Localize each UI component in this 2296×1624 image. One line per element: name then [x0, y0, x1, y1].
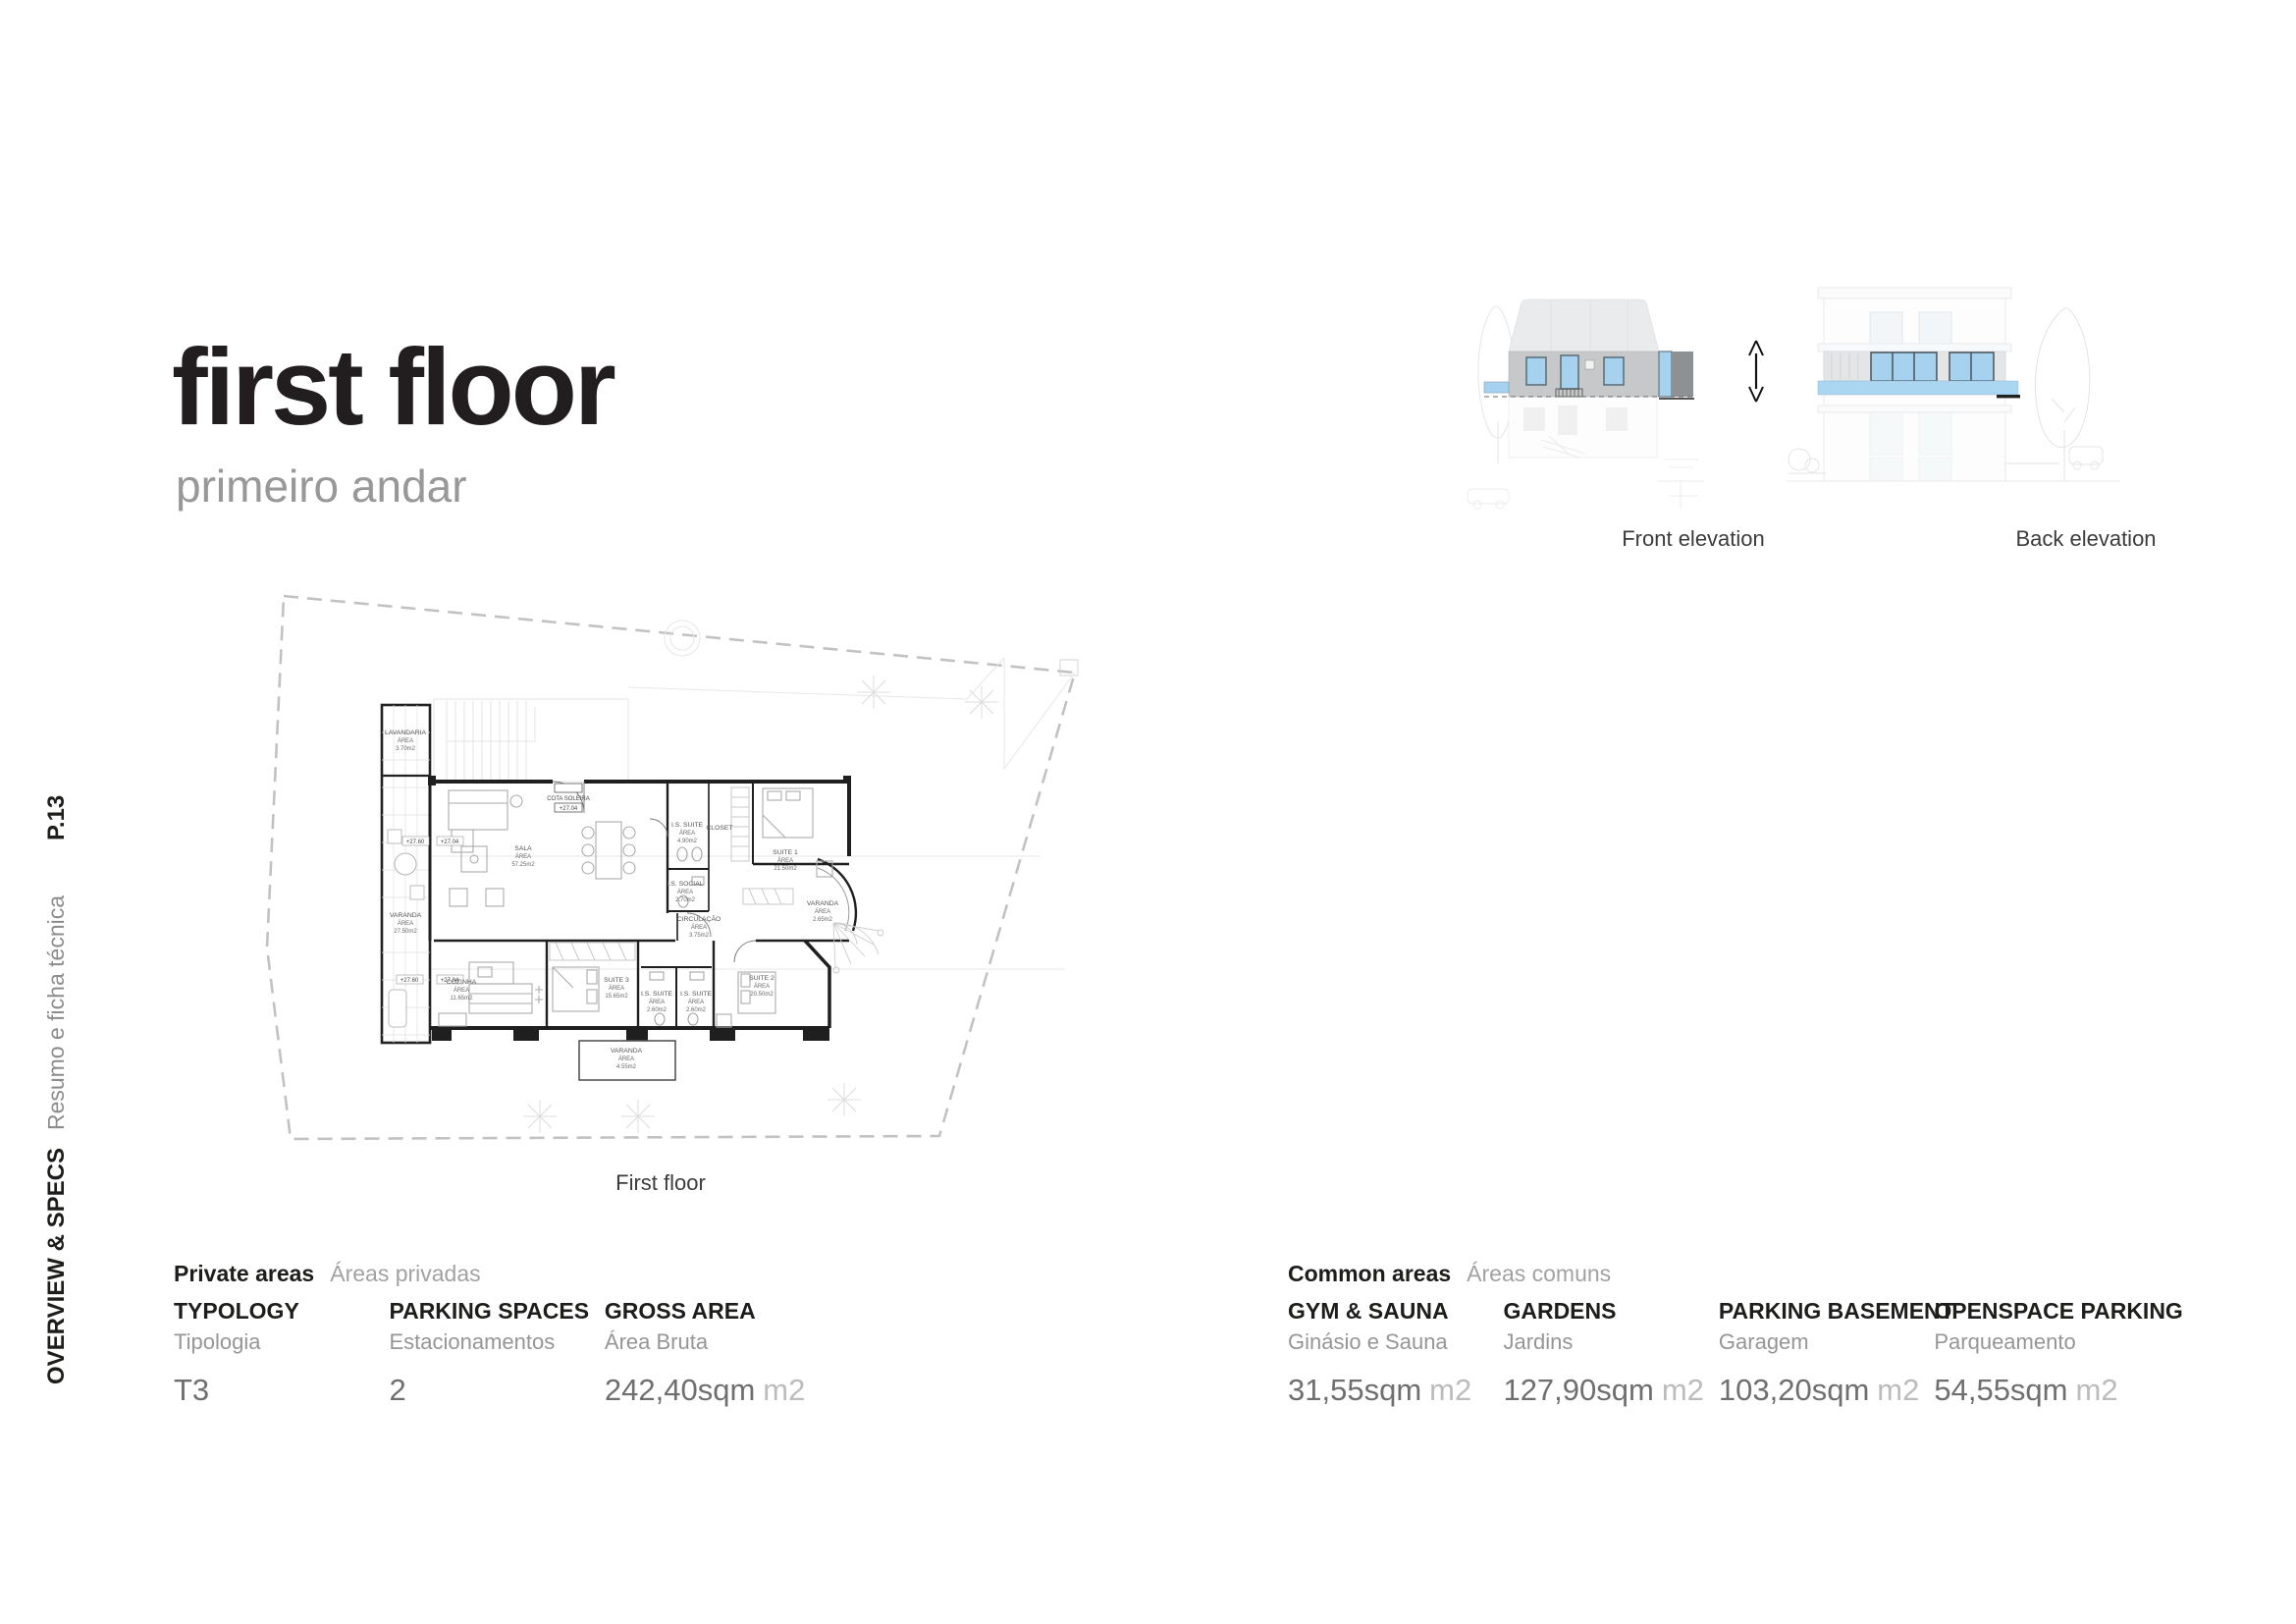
spec-value: 2	[389, 1373, 600, 1408]
page-title: first floor	[172, 334, 614, 442]
back-tree	[2035, 308, 2089, 481]
room-label-is-social: I.S. SOCIALÁREA2.70m2	[667, 881, 703, 903]
svg-text:SUITE 2: SUITE 2	[749, 975, 774, 982]
spec-label-en: OPENSPACE PARKING	[1934, 1298, 2145, 1325]
svg-text:VARANDA: VARANDA	[390, 912, 422, 919]
svg-text:CIRCULAÇÃO: CIRCULAÇÃO	[677, 914, 721, 923]
building-outer-walls	[428, 776, 856, 1041]
spec-item: GROSS AREA Área Bruta 242,40sqmm2	[605, 1298, 816, 1408]
brochure-page: first floor primeiro andar P.13 OVERVIEW…	[0, 0, 2296, 1624]
svg-text:COTA SOLEIRA: COTA SOLEIRA	[547, 796, 590, 802]
svg-text:2.60m2: 2.60m2	[686, 1007, 707, 1013]
svg-text:2.65m2: 2.65m2	[813, 917, 833, 923]
svg-text:I.S. SOCIAL: I.S. SOCIAL	[667, 881, 703, 888]
svg-text:2.70m2: 2.70m2	[675, 897, 696, 903]
svg-text:ÁREA: ÁREA	[618, 1056, 634, 1062]
section-label-pt: Resumo e ficha técnica	[43, 895, 69, 1130]
svg-text:3.75m2: 3.75m2	[689, 933, 710, 939]
spec-value: T3	[174, 1373, 385, 1408]
spec-unit: m2	[763, 1373, 805, 1407]
spec-label-en: GROSS AREA	[605, 1298, 816, 1325]
section-label-en: OVERVIEW & SPECS	[43, 1148, 70, 1384]
svg-text:11.65m2: 11.65m2	[451, 996, 474, 1001]
common-areas-header: Common areasÁreas comuns	[1288, 1261, 1611, 1287]
svg-text:I.S. SUITE: I.S. SUITE	[680, 991, 713, 998]
front-roof	[1509, 299, 1659, 352]
room-label-is-suite-b: I.S. SUITEÁREA2.60m2	[680, 991, 713, 1013]
spec-item: TYPOLOGY Tipologia T3	[174, 1298, 385, 1408]
spec-value: 31,55sqmm2	[1288, 1373, 1499, 1408]
svg-text:ÁREA: ÁREA	[398, 920, 413, 927]
private-areas-header: Private areasÁreas privadas	[174, 1261, 481, 1287]
room-label-cozinha: COZINHAÁREA11.65m2	[447, 979, 477, 1001]
room-label-circulacao: CIRCULAÇÃOÁREA3.75m2	[677, 914, 721, 939]
spec-label-en: GYM & SAUNA	[1288, 1298, 1499, 1325]
back-elevation-label: Back elevation	[2002, 526, 2169, 552]
common-areas-columns: GYM & SAUNA Ginásio e Sauna 31,55sqmm2 G…	[1288, 1298, 2145, 1408]
svg-text:SUITE 1: SUITE 1	[773, 849, 798, 856]
svg-text:+27.60: +27.60	[406, 839, 425, 845]
svg-text:ÁREA: ÁREA	[454, 987, 469, 994]
updown-arrow-icon	[1737, 334, 1777, 412]
room-label-varanda-east: VARANDAÁREA2.65m2	[807, 900, 839, 923]
back-elevation-drawing	[1787, 270, 2130, 525]
svg-text:SUITE 3: SUITE 3	[604, 977, 629, 984]
front-ground-floor	[1509, 397, 1657, 458]
spec-unit: m2	[1877, 1373, 1919, 1407]
front-elevation-drawing	[1463, 280, 1757, 525]
room-label-suite2: SUITE 2ÁREA20.50m2	[749, 975, 774, 998]
svg-text:4.90m2: 4.90m2	[677, 839, 698, 844]
stair-void	[434, 699, 628, 782]
svg-text:+27.04: +27.04	[560, 806, 578, 812]
spec-value: 127,90sqmm2	[1503, 1373, 1714, 1408]
back-first-floor-band	[1818, 352, 2020, 398]
section-label: OVERVIEW & SPECSResumo e ficha técnica	[43, 895, 71, 1384]
spec-label-pt: Jardins	[1503, 1329, 1714, 1355]
spec-item: PARKING SPACES Estacionamentos 2	[389, 1298, 600, 1408]
spec-label-en: GARDENS	[1503, 1298, 1714, 1325]
spec-label-pt: Garagem	[1719, 1329, 1930, 1355]
front-elevation-label: Front elevation	[1610, 526, 1777, 552]
svg-text:ÁREA: ÁREA	[679, 830, 695, 837]
common-areas-header-pt: Áreas comuns	[1467, 1261, 1611, 1286]
room-label-closet: CLOSET	[706, 825, 732, 832]
svg-text:SALA: SALA	[514, 845, 532, 852]
svg-text:ÁREA: ÁREA	[649, 999, 665, 1005]
svg-text:ÁREA: ÁREA	[815, 908, 830, 915]
svg-text:21.50m2: 21.50m2	[774, 866, 797, 872]
front-first-floor-band	[1484, 352, 1695, 399]
spec-value: 54,55sqmm2	[1934, 1373, 2145, 1408]
spec-label-en: PARKING BASEMENT	[1719, 1298, 1930, 1325]
plan-caption: First floor	[528, 1170, 793, 1196]
svg-text:4.55m2: 4.55m2	[616, 1064, 637, 1070]
spec-label-pt: Parqueamento	[1934, 1329, 2145, 1355]
svg-text:VARANDA: VARANDA	[807, 900, 839, 907]
room-label-suite3: SUITE 3ÁREA15.65m2	[604, 977, 629, 1000]
spec-value: 103,20sqmm2	[1719, 1373, 1930, 1408]
svg-text:ÁREA: ÁREA	[777, 857, 793, 864]
spec-item: GARDENS Jardins 127,90sqmm2	[1503, 1298, 1714, 1408]
site-context-lines	[430, 621, 1075, 1133]
private-areas-columns: TYPOLOGY Tipologia T3 PARKING SPACES Est…	[174, 1298, 816, 1408]
private-areas-header-pt: Áreas privadas	[330, 1261, 480, 1286]
front-ground-scribbles	[1468, 460, 1704, 509]
svg-text:I.S. SUITE: I.S. SUITE	[671, 822, 704, 829]
furniture	[439, 787, 832, 1063]
private-areas-header-en: Private areas	[174, 1261, 314, 1286]
spec-item: GYM & SAUNA Ginásio e Sauna 31,55sqmm2	[1288, 1298, 1499, 1408]
west-balcony-strip	[382, 705, 430, 1043]
room-label-is-suite-a: I.S. SUITEÁREA2.60m2	[641, 991, 673, 1013]
spec-label-en: TYPOLOGY	[174, 1298, 385, 1325]
page-subtitle: primeiro andar	[176, 460, 467, 513]
svg-text:20.50m2: 20.50m2	[750, 992, 774, 998]
page-number: P.13	[43, 795, 71, 840]
svg-text:ÁREA: ÁREA	[688, 999, 704, 1005]
svg-text:COZINHA: COZINHA	[447, 979, 477, 986]
svg-text:2.60m2: 2.60m2	[647, 1007, 667, 1013]
svg-text:I.S. SUITE: I.S. SUITE	[641, 991, 673, 998]
floor-plan-drawing: +27.60 +27.04 +27.60 +27.04 COTA SOLEIRA…	[250, 565, 1114, 1173]
spiral-stair	[833, 923, 883, 973]
svg-text:LAVANDARIA: LAVANDARIA	[385, 730, 427, 736]
svg-text:27.50m2: 27.50m2	[394, 929, 417, 935]
spec-value: 242,40sqmm2	[605, 1373, 816, 1408]
svg-text:+27.60: +27.60	[400, 978, 419, 984]
spec-label-pt: Estacionamentos	[389, 1329, 600, 1355]
spec-label-pt: Área Bruta	[605, 1329, 816, 1355]
spec-item: PARKING BASEMENT Garagem 103,20sqmm2	[1719, 1298, 1930, 1408]
svg-text:VARANDA: VARANDA	[611, 1048, 643, 1055]
spec-unit: m2	[2076, 1373, 2118, 1407]
spec-item: OPENSPACE PARKING Parqueamento 54,55sqmm…	[1934, 1298, 2145, 1408]
room-label-suite1: SUITE 1ÁREA21.50m2	[773, 849, 798, 872]
svg-text:57.25m2: 57.25m2	[511, 862, 535, 868]
svg-text:CLOSET: CLOSET	[706, 825, 732, 832]
spec-label-pt: Ginásio e Sauna	[1288, 1329, 1499, 1355]
svg-text:ÁREA: ÁREA	[398, 737, 413, 744]
svg-text:ÁREA: ÁREA	[515, 853, 531, 860]
svg-text:ÁREA: ÁREA	[691, 924, 707, 931]
svg-text:15.65m2: 15.65m2	[605, 994, 628, 1000]
svg-text:ÁREA: ÁREA	[609, 985, 624, 992]
spec-label-en: PARKING SPACES	[389, 1298, 600, 1325]
spec-unit: m2	[1429, 1373, 1471, 1407]
svg-text:+27.04: +27.04	[441, 839, 459, 845]
svg-text:ÁREA: ÁREA	[677, 889, 693, 895]
room-label-is-suite: I.S. SUITEÁREA4.90m2	[671, 822, 704, 844]
spec-unit: m2	[1662, 1373, 1704, 1407]
common-areas-header-en: Common areas	[1288, 1261, 1451, 1286]
svg-text:ÁREA: ÁREA	[754, 983, 770, 990]
spec-label-pt: Tipologia	[174, 1329, 385, 1355]
svg-text:3.70m2: 3.70m2	[396, 746, 416, 752]
